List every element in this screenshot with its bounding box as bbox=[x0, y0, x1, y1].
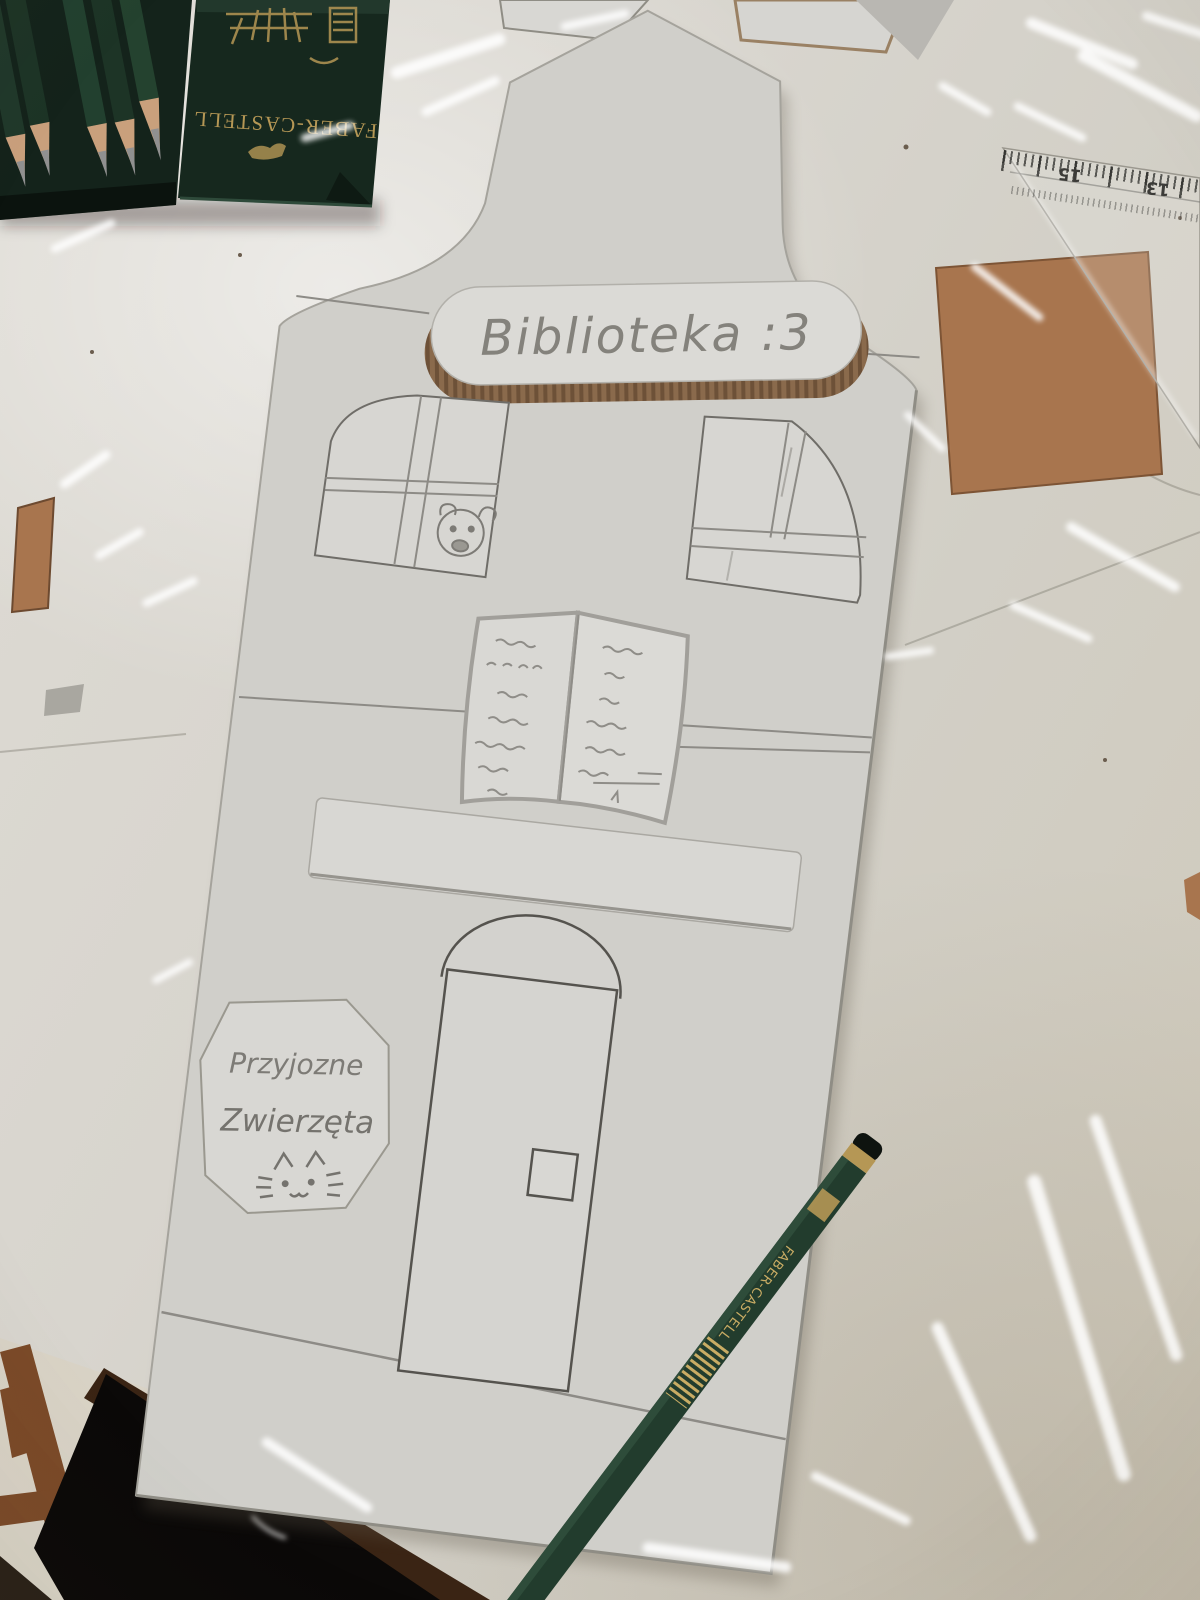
ruler-number-13: 13 bbox=[1145, 177, 1171, 199]
tin-lid: FABER-CASTELL bbox=[178, 0, 390, 206]
door-sign-line1: Przyjozne bbox=[229, 1047, 364, 1082]
brown-sliver-right bbox=[1184, 872, 1200, 920]
library-building-model: Biblioteka :3 bbox=[136, 0, 958, 1573]
door-handle bbox=[528, 1149, 578, 1200]
pencil-tin: FABER-CASTELL bbox=[0, 0, 390, 226]
door-sign-line2: Zwierzęta bbox=[219, 1103, 374, 1142]
door-sign: Przyjozne Zwierzęta bbox=[198, 997, 392, 1215]
building-sign: Biblioteka :3 bbox=[423, 280, 869, 405]
open-book bbox=[455, 601, 693, 828]
ruler-number-15: 15 bbox=[1057, 163, 1083, 185]
book-right-page bbox=[554, 613, 693, 824]
scene-drawing: FABER-CASTELL Bi bbox=[0, 0, 1200, 1600]
gray-scrap-left bbox=[44, 684, 84, 716]
craft-photo-scene: FABER-CASTELL Bi bbox=[0, 0, 1200, 1600]
building-sign-text: Biblioteka :3 bbox=[480, 304, 814, 367]
brown-strip-left bbox=[12, 498, 54, 612]
